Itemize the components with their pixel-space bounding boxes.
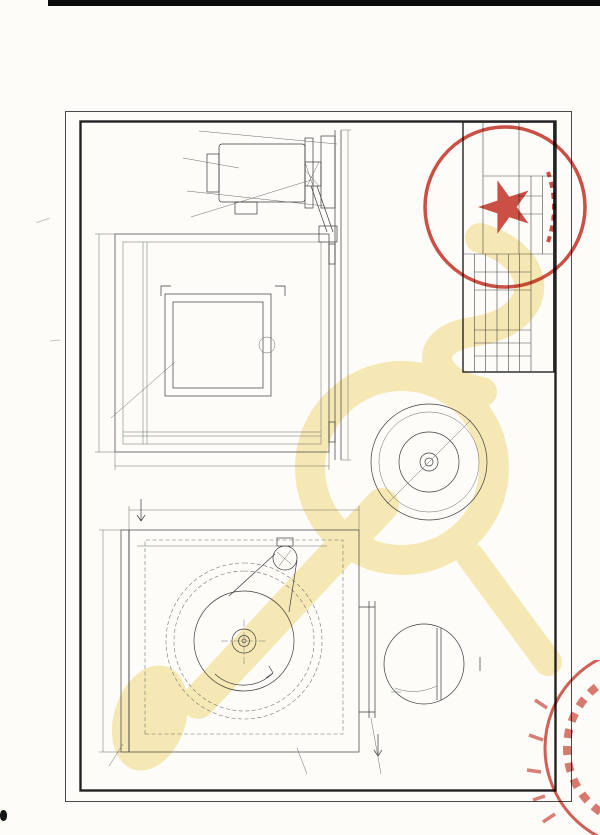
impeller-section-view — [371, 404, 487, 520]
scanned-report-page — [0, 0, 600, 835]
company-seal — [418, 120, 592, 294]
seal-star — [478, 180, 529, 233]
side-view — [99, 499, 382, 774]
blade-detail-view — [384, 624, 480, 704]
partial-seal — [505, 660, 600, 835]
front-view — [95, 130, 351, 470]
